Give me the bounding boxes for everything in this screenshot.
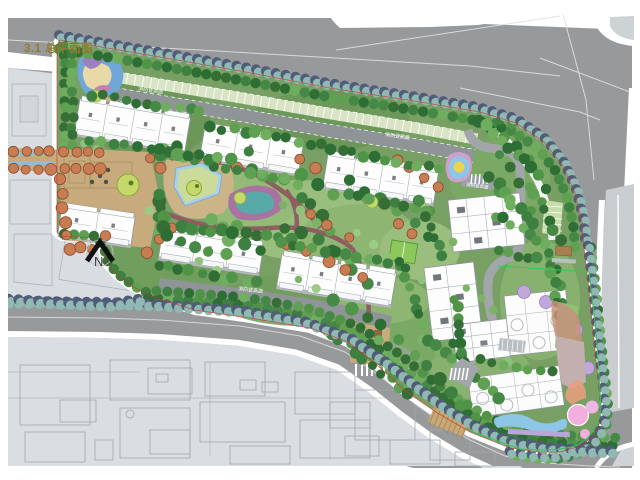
svg-text:3.1 总平面图: 3.1 总平面图 xyxy=(24,41,93,55)
svg-text:N: N xyxy=(94,254,103,269)
